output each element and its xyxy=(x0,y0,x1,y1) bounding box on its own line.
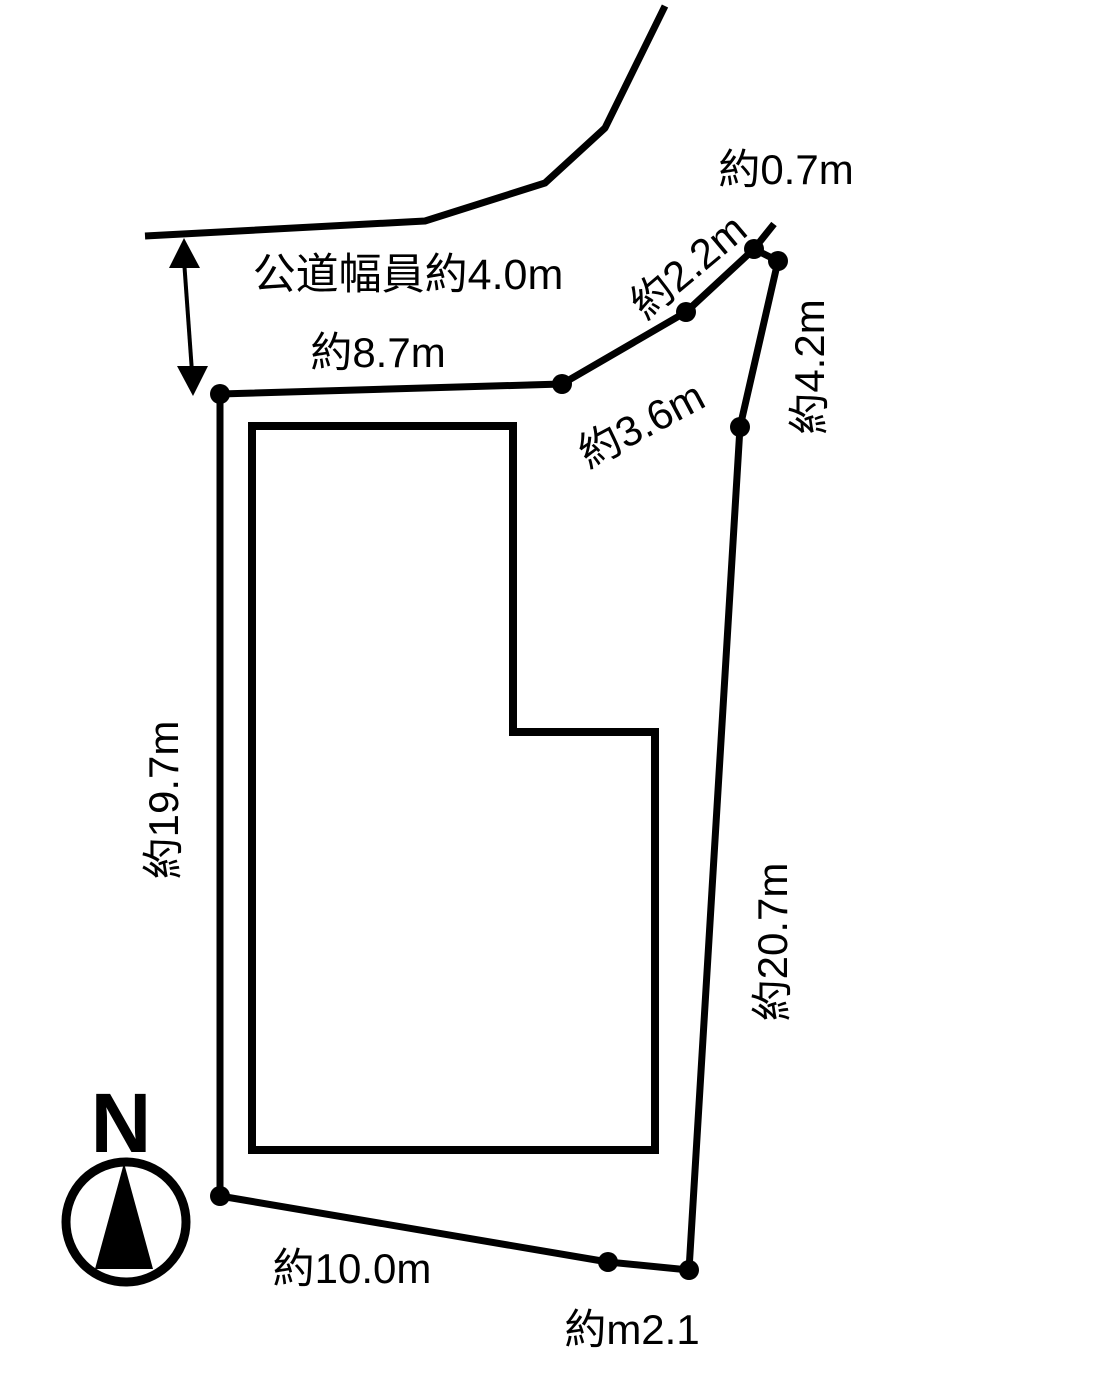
road-width-arrowhead-down xyxy=(177,366,208,396)
label-top-edge: 約8.7m xyxy=(310,329,445,376)
label-left-edge: 約19.7m xyxy=(140,721,187,880)
vertex-dot xyxy=(210,384,230,404)
building-outline xyxy=(252,426,655,1150)
label-edge-4-2: 約4.2m xyxy=(786,299,833,434)
road-width-arrowhead-up xyxy=(169,238,200,268)
road-edge-line xyxy=(145,6,665,236)
north-compass: N xyxy=(66,1076,186,1282)
land-plot-diagram: 公道幅員約4.0m 約8.7m 約0.7m 約2.2m 約3.6m 約4.2m … xyxy=(0,0,1114,1385)
vertex-dot xyxy=(598,1252,618,1272)
compass-needle xyxy=(95,1163,153,1269)
vertex-dot xyxy=(676,302,696,322)
label-right-edge: 約20.7m xyxy=(749,863,796,1022)
vertex-dot xyxy=(768,251,788,271)
north-letter: N xyxy=(91,1076,152,1170)
road-width-arrow-shaft xyxy=(184,260,192,372)
vertex-dot xyxy=(730,417,750,437)
label-bottom-edge: 約10.0m xyxy=(273,1245,432,1292)
label-bottom-right-edge: 約m2.1 xyxy=(564,1306,699,1353)
label-edge-0-7: 約0.7m xyxy=(718,146,853,193)
vertex-dot xyxy=(210,1186,230,1206)
vertex-dot xyxy=(552,374,572,394)
vertex-dot xyxy=(679,1260,699,1280)
label-road-width: 公道幅員約4.0m xyxy=(253,251,564,299)
label-edge-3-6: 約3.6m xyxy=(570,372,712,477)
plot-diagram-canvas: 公道幅員約4.0m 約8.7m 約0.7m 約2.2m 約3.6m 約4.2m … xyxy=(0,0,1114,1385)
road-width-arrow xyxy=(169,238,208,396)
